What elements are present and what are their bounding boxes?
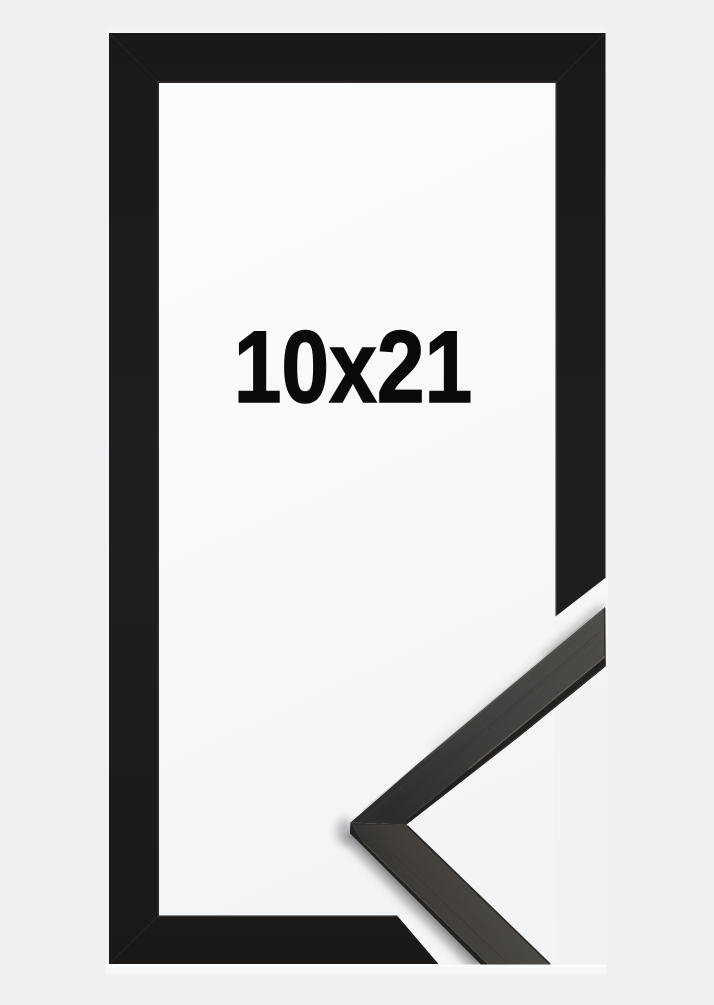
svg-text:10x21: 10x21 bbox=[234, 310, 473, 425]
